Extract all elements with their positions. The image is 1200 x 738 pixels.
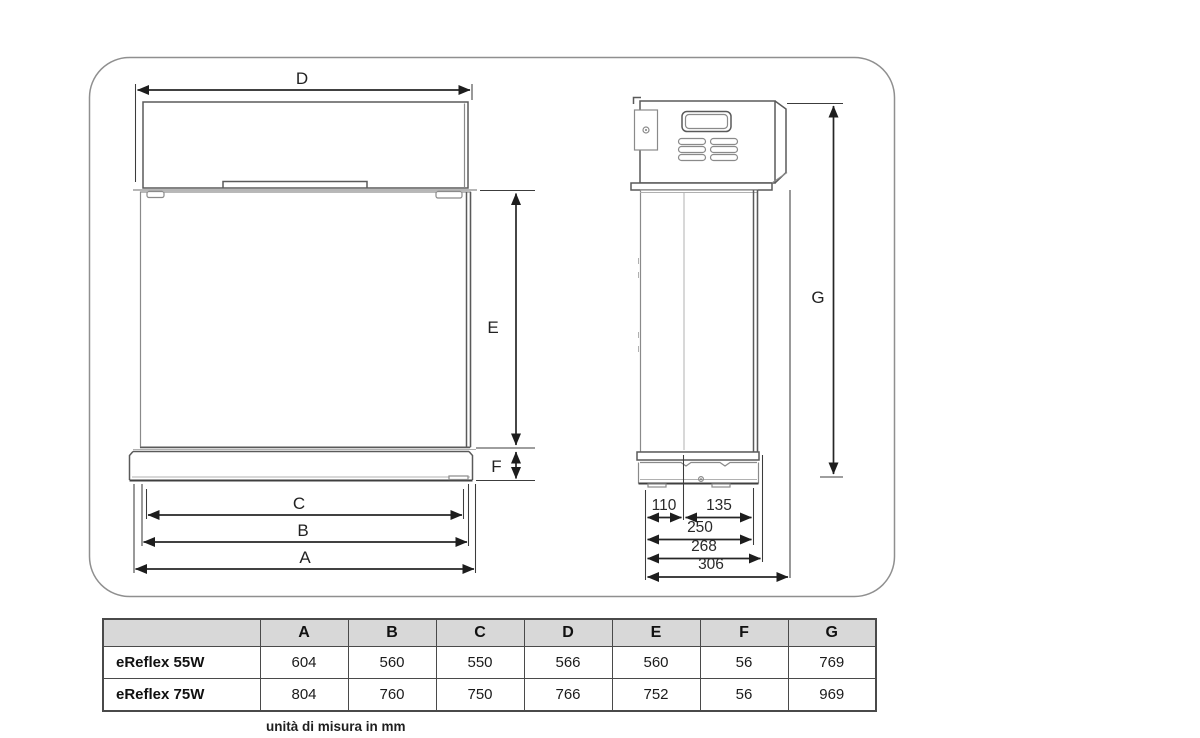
- dim-label-c: C: [293, 494, 305, 513]
- dimension-110: 110: [648, 497, 682, 518]
- table-cell: 566: [524, 647, 612, 679]
- dimension-g: G: [787, 104, 843, 478]
- dimension-f: F: [476, 452, 535, 481]
- front-view: [130, 102, 478, 481]
- row-label: eReflex 55W: [103, 647, 260, 679]
- table-cell: 560: [348, 647, 436, 679]
- table-cell: 56: [700, 647, 788, 679]
- dimension-135: 135: [686, 497, 752, 518]
- table-cell: 760: [348, 679, 436, 712]
- column-header-e: E: [612, 619, 700, 647]
- dim-label-b: B: [297, 521, 308, 540]
- table-row: eReflex 55W 604 560 550 566 560 56 769: [103, 647, 876, 679]
- table-header-row: A B C D E F G: [103, 619, 876, 647]
- dim-label-a: A: [299, 548, 311, 567]
- table-cell: 766: [524, 679, 612, 712]
- dim-label-268: 268: [691, 538, 717, 555]
- dim-label-g: G: [811, 288, 824, 307]
- dimensions-table: A B C D E F G eReflex 55W 604 560 550 56…: [102, 618, 877, 712]
- dim-label-135: 135: [706, 497, 732, 514]
- column-header-f: F: [700, 619, 788, 647]
- dimension-c: C: [147, 489, 464, 519]
- dimension-e: E: [476, 191, 535, 449]
- column-header-d: D: [524, 619, 612, 647]
- table-cell: 750: [436, 679, 524, 712]
- column-header-g: G: [788, 619, 876, 647]
- units-caption: unità di misura in mm: [266, 719, 406, 734]
- dim-label-306: 306: [698, 556, 724, 573]
- table-cell: 56: [700, 679, 788, 712]
- dim-label-f: F: [491, 457, 501, 476]
- column-header-a: A: [260, 619, 348, 647]
- column-header-c: C: [436, 619, 524, 647]
- table-cell: 604: [260, 647, 348, 679]
- row-label: eReflex 75W: [103, 679, 260, 712]
- table-cell: 752: [612, 679, 700, 712]
- table-cell: 560: [612, 647, 700, 679]
- table-cell: 550: [436, 647, 524, 679]
- page: D E F C B: [0, 0, 1200, 738]
- dim-label-e: E: [487, 318, 498, 337]
- dim-label-d: D: [296, 69, 308, 88]
- dim-label-250: 250: [687, 519, 713, 536]
- table-corner-cell: [103, 619, 260, 647]
- table-cell: 969: [788, 679, 876, 712]
- dimension-250: 250: [648, 519, 752, 540]
- table-cell: 769: [788, 647, 876, 679]
- dim-label-110: 110: [652, 497, 677, 514]
- column-header-b: B: [348, 619, 436, 647]
- table-row: eReflex 75W 804 760 750 766 752 56 969: [103, 679, 876, 712]
- table-cell: 804: [260, 679, 348, 712]
